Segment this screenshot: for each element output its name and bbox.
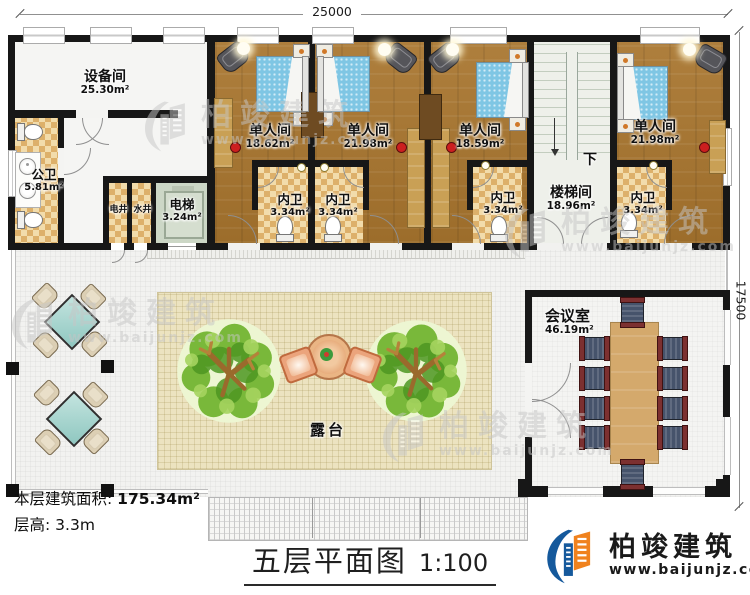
room-label-meeting: 会议室 46.19m² <box>545 308 625 336</box>
desk-icon <box>709 120 726 174</box>
room-name: 电梯 <box>156 198 208 212</box>
floor-plan: 设备间 25.30m² 公卫 5.81m² 电井 水井 电梯 3.24m² 单人… <box>0 0 750 595</box>
wall-hatch-strip <box>147 250 525 259</box>
chair-icon <box>659 397 686 420</box>
faucet-icon <box>481 161 490 170</box>
lamp-icon <box>683 43 696 56</box>
door-opening <box>525 363 532 437</box>
toilet-icon <box>324 216 342 242</box>
grille-divider <box>420 498 421 538</box>
room-area: 18.62m² <box>225 139 315 151</box>
room-area: 46.19m² <box>545 325 625 337</box>
chair-icon <box>659 426 686 449</box>
fire-extinguisher-icon <box>699 142 710 153</box>
dimension-top-value: 25000 <box>303 4 361 19</box>
room-label-bath2: 内卫 3.34m² <box>310 193 366 218</box>
room-label-stairwell: 楼梯间 18.96m² <box>526 186 616 213</box>
window <box>450 27 507 44</box>
room-name: 会议室 <box>545 308 625 325</box>
chair-icon <box>659 367 686 390</box>
wall <box>723 475 730 497</box>
stair-arrow-line <box>554 118 555 150</box>
column <box>101 360 114 373</box>
dimension-right-value: 17500 <box>734 274 749 328</box>
chair-icon <box>581 367 608 390</box>
chair-icon <box>581 337 608 360</box>
room-area: 3.34m² <box>615 205 671 216</box>
room-label-bedroom3: 单人间 18.59m² <box>435 124 525 151</box>
room-area: 3.24m² <box>156 212 208 223</box>
room-label-equipment: 设备间 25.30m² <box>60 70 150 97</box>
door-opening <box>370 243 402 250</box>
wall <box>309 160 369 167</box>
room-area: 5.81m² <box>14 182 74 193</box>
wall <box>424 42 431 243</box>
floor-height-label: 层高: <box>14 516 50 534</box>
chair-icon <box>621 461 644 488</box>
lamp-icon <box>446 43 459 56</box>
wall <box>610 160 672 167</box>
lamp-icon <box>237 42 250 55</box>
drawing-title-block: 五层平面图1:100 <box>220 538 520 586</box>
door-opening <box>76 110 108 118</box>
elevator-door <box>168 243 196 250</box>
window <box>23 27 65 44</box>
window <box>548 487 603 495</box>
floor-area-line: 本层建筑面积: 175.34m² <box>14 487 200 509</box>
floor-height-line: 层高: 3.3m <box>14 513 95 535</box>
room-label-electric-shaft: 电井 <box>107 206 130 216</box>
wall <box>525 297 532 363</box>
chair-icon <box>581 397 608 420</box>
nightstand-icon <box>617 53 634 67</box>
wall <box>467 160 533 167</box>
grille-divider <box>312 498 313 538</box>
faucet-icon <box>649 161 658 170</box>
chair-icon <box>581 426 608 449</box>
column <box>6 362 19 375</box>
stair-arrow-head <box>551 149 559 156</box>
toilet-icon <box>276 216 294 242</box>
window <box>724 417 731 475</box>
room-label-public-wc: 公卫 5.81m² <box>14 168 74 193</box>
lamp-icon <box>378 43 391 56</box>
room-area: 21.98m² <box>610 135 700 147</box>
room-label-elevator: 电梯 3.24m² <box>156 198 208 223</box>
stair-divider <box>566 52 578 160</box>
door-opening <box>537 243 607 250</box>
room-name: 公卫 <box>14 168 74 182</box>
brand-site: www.baijunjz.com <box>609 562 750 578</box>
terrace-grille <box>208 497 528 541</box>
window <box>312 27 354 44</box>
bed-icon <box>618 66 668 120</box>
conference-table-icon <box>610 322 659 464</box>
brand-logo: 柏竣建筑 www.baijunjz.com <box>543 527 750 585</box>
bed-icon <box>318 56 370 112</box>
door-opening <box>134 243 147 250</box>
room-area: 25.30m² <box>60 85 150 97</box>
wall <box>525 290 730 297</box>
door-opening <box>228 243 260 250</box>
elevator-machine <box>172 186 194 191</box>
brand-icon <box>543 527 601 585</box>
toilet-icon <box>17 123 43 141</box>
floor-area-value: 175.34m² <box>117 490 200 508</box>
door-opening <box>111 243 124 250</box>
floor-area-label: 本层建筑面积: <box>14 490 112 508</box>
room-label-terrace: 露台 <box>297 422 359 439</box>
room-area: 3.34m² <box>475 205 531 216</box>
wall <box>518 486 548 497</box>
wall <box>103 176 213 183</box>
room-area: 21.98m² <box>323 139 413 151</box>
dimension-line-top <box>20 14 728 15</box>
nightstand-icon <box>509 49 526 63</box>
room-label-bath3: 内卫 3.34m² <box>475 191 531 216</box>
brand-name: 柏竣建筑 <box>609 534 750 562</box>
room-label-water-shaft: 水井 <box>131 206 154 216</box>
wall <box>723 365 730 417</box>
door-opening <box>452 243 484 250</box>
toilet-icon <box>490 216 508 242</box>
faucet-icon <box>320 163 329 172</box>
room-name: 内卫 <box>615 191 671 205</box>
floor-height-value: 3.3m <box>55 516 95 534</box>
tree-icon <box>174 316 284 426</box>
room-label-bath4: 内卫 3.34m² <box>615 191 671 216</box>
room-name: 电井 <box>109 205 127 215</box>
door-opening <box>660 243 692 250</box>
room-area: 18.96m² <box>526 201 616 213</box>
faucet-icon <box>297 163 306 172</box>
room-name: 内卫 <box>310 193 366 207</box>
room-label-bedroom1: 单人间 18.62m² <box>225 124 315 151</box>
room-label-bedroom2: 单人间 21.98m² <box>323 124 413 151</box>
window <box>163 27 205 44</box>
room-label-bedroom4: 单人间 21.98m² <box>610 120 700 147</box>
drawing-scale: 1:100 <box>419 549 488 577</box>
wall <box>723 290 730 310</box>
room-area: 18.59m² <box>435 139 525 151</box>
stair-down-label: 下 <box>578 153 602 168</box>
terrace-railing-right <box>726 250 728 290</box>
room-name: 露台 <box>297 422 359 439</box>
flower-icon <box>320 348 333 361</box>
window <box>724 310 731 365</box>
room-name: 内卫 <box>475 191 531 205</box>
wall <box>8 35 15 250</box>
window <box>653 487 705 495</box>
toilet-icon <box>17 211 43 229</box>
room-name: 水井 <box>133 205 151 215</box>
dimension-line-right <box>739 32 740 508</box>
tree-icon <box>362 317 470 425</box>
chair-icon <box>659 337 686 360</box>
window <box>90 27 132 44</box>
down-text: 下 <box>578 153 602 168</box>
window <box>640 27 700 44</box>
room-area: 3.34m² <box>310 207 366 218</box>
bed-icon <box>476 62 528 118</box>
drawing-title: 五层平面图 <box>252 544 407 578</box>
